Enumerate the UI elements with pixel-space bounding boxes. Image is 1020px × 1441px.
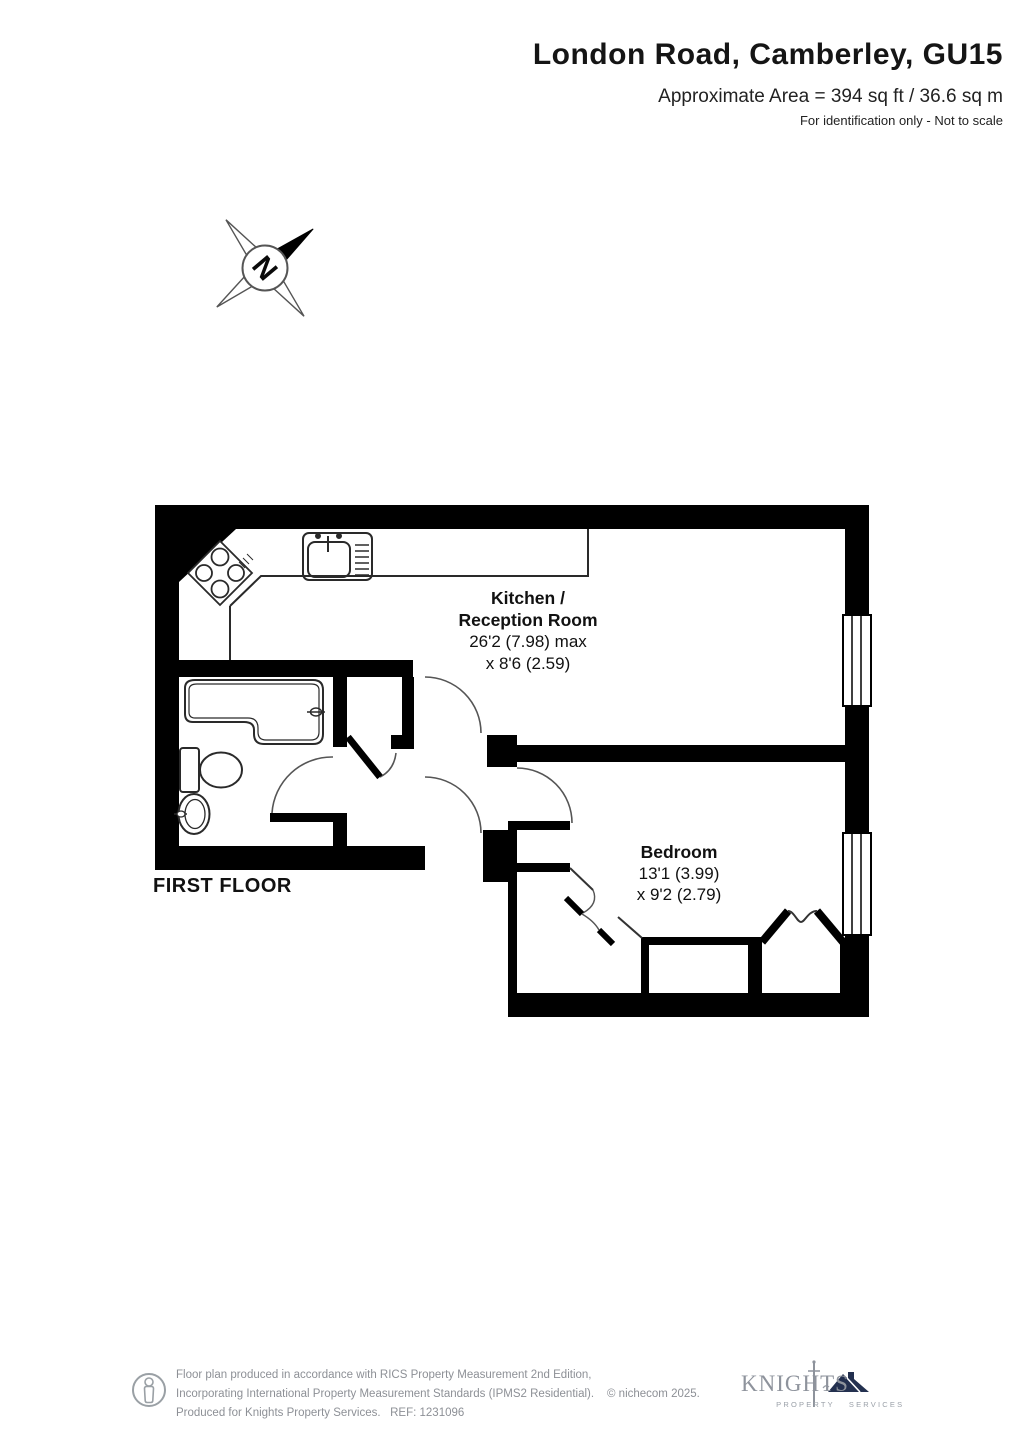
window-bedroom: [843, 833, 871, 935]
closet-door-leaf: [348, 737, 380, 777]
person-icon: [133, 1374, 165, 1406]
bedroom-dimensions-line2: x 9'2 (2.79): [549, 884, 809, 905]
basin-icon: [174, 794, 210, 834]
logo-sub-services: SERVICES: [849, 1400, 904, 1409]
floor-title: FIRST FLOOR: [153, 875, 292, 898]
kitchen-dimensions-line1: 26'2 (7.98) max: [398, 631, 658, 653]
approximate-area: Approximate Area = 394 sq ft / 36.6 sq m: [658, 86, 1003, 108]
window-kitchen: [843, 615, 871, 706]
knights-logo-subtitle: PROPERTYSERVICES: [759, 1391, 904, 1418]
page-title: London Road, Camberley, GU15: [533, 38, 1003, 72]
sink-icon: [303, 533, 372, 580]
fireplace: [762, 911, 843, 942]
disclaimer-line-3: Produced for Knights Property Services. …: [176, 1407, 464, 1419]
bedroom-label: Bedroom 13'1 (3.99) x 9'2 (2.79): [549, 842, 809, 905]
logo-sub-property: PROPERTY: [776, 1400, 835, 1409]
floorplan-page: N: [0, 0, 1020, 1441]
disclaimer-line-2: Incorporating International Property Mea…: [176, 1388, 594, 1400]
bathtub-icon: [185, 680, 325, 744]
bedroom-name: Bedroom: [549, 842, 809, 863]
disclaimer-line-1: Floor plan produced in accordance with R…: [176, 1369, 592, 1381]
kitchen-name-line1: Kitchen /: [398, 587, 658, 609]
copyright-text: © nichecom 2025.: [607, 1388, 700, 1400]
compass-rose-icon: N: [178, 181, 352, 355]
scale-note: For identification only - Not to scale: [800, 113, 1003, 128]
kitchen-name-line2: Reception Room: [398, 609, 658, 631]
bedroom-dimensions-line1: 13'1 (3.99): [549, 863, 809, 884]
floorplan-drawing: N: [0, 0, 1020, 1441]
toilet-icon: [180, 748, 242, 792]
kitchen-reception-label: Kitchen / Reception Room 26'2 (7.98) max…: [398, 587, 658, 675]
kitchen-dimensions-line2: x 8'6 (2.59): [398, 653, 658, 675]
